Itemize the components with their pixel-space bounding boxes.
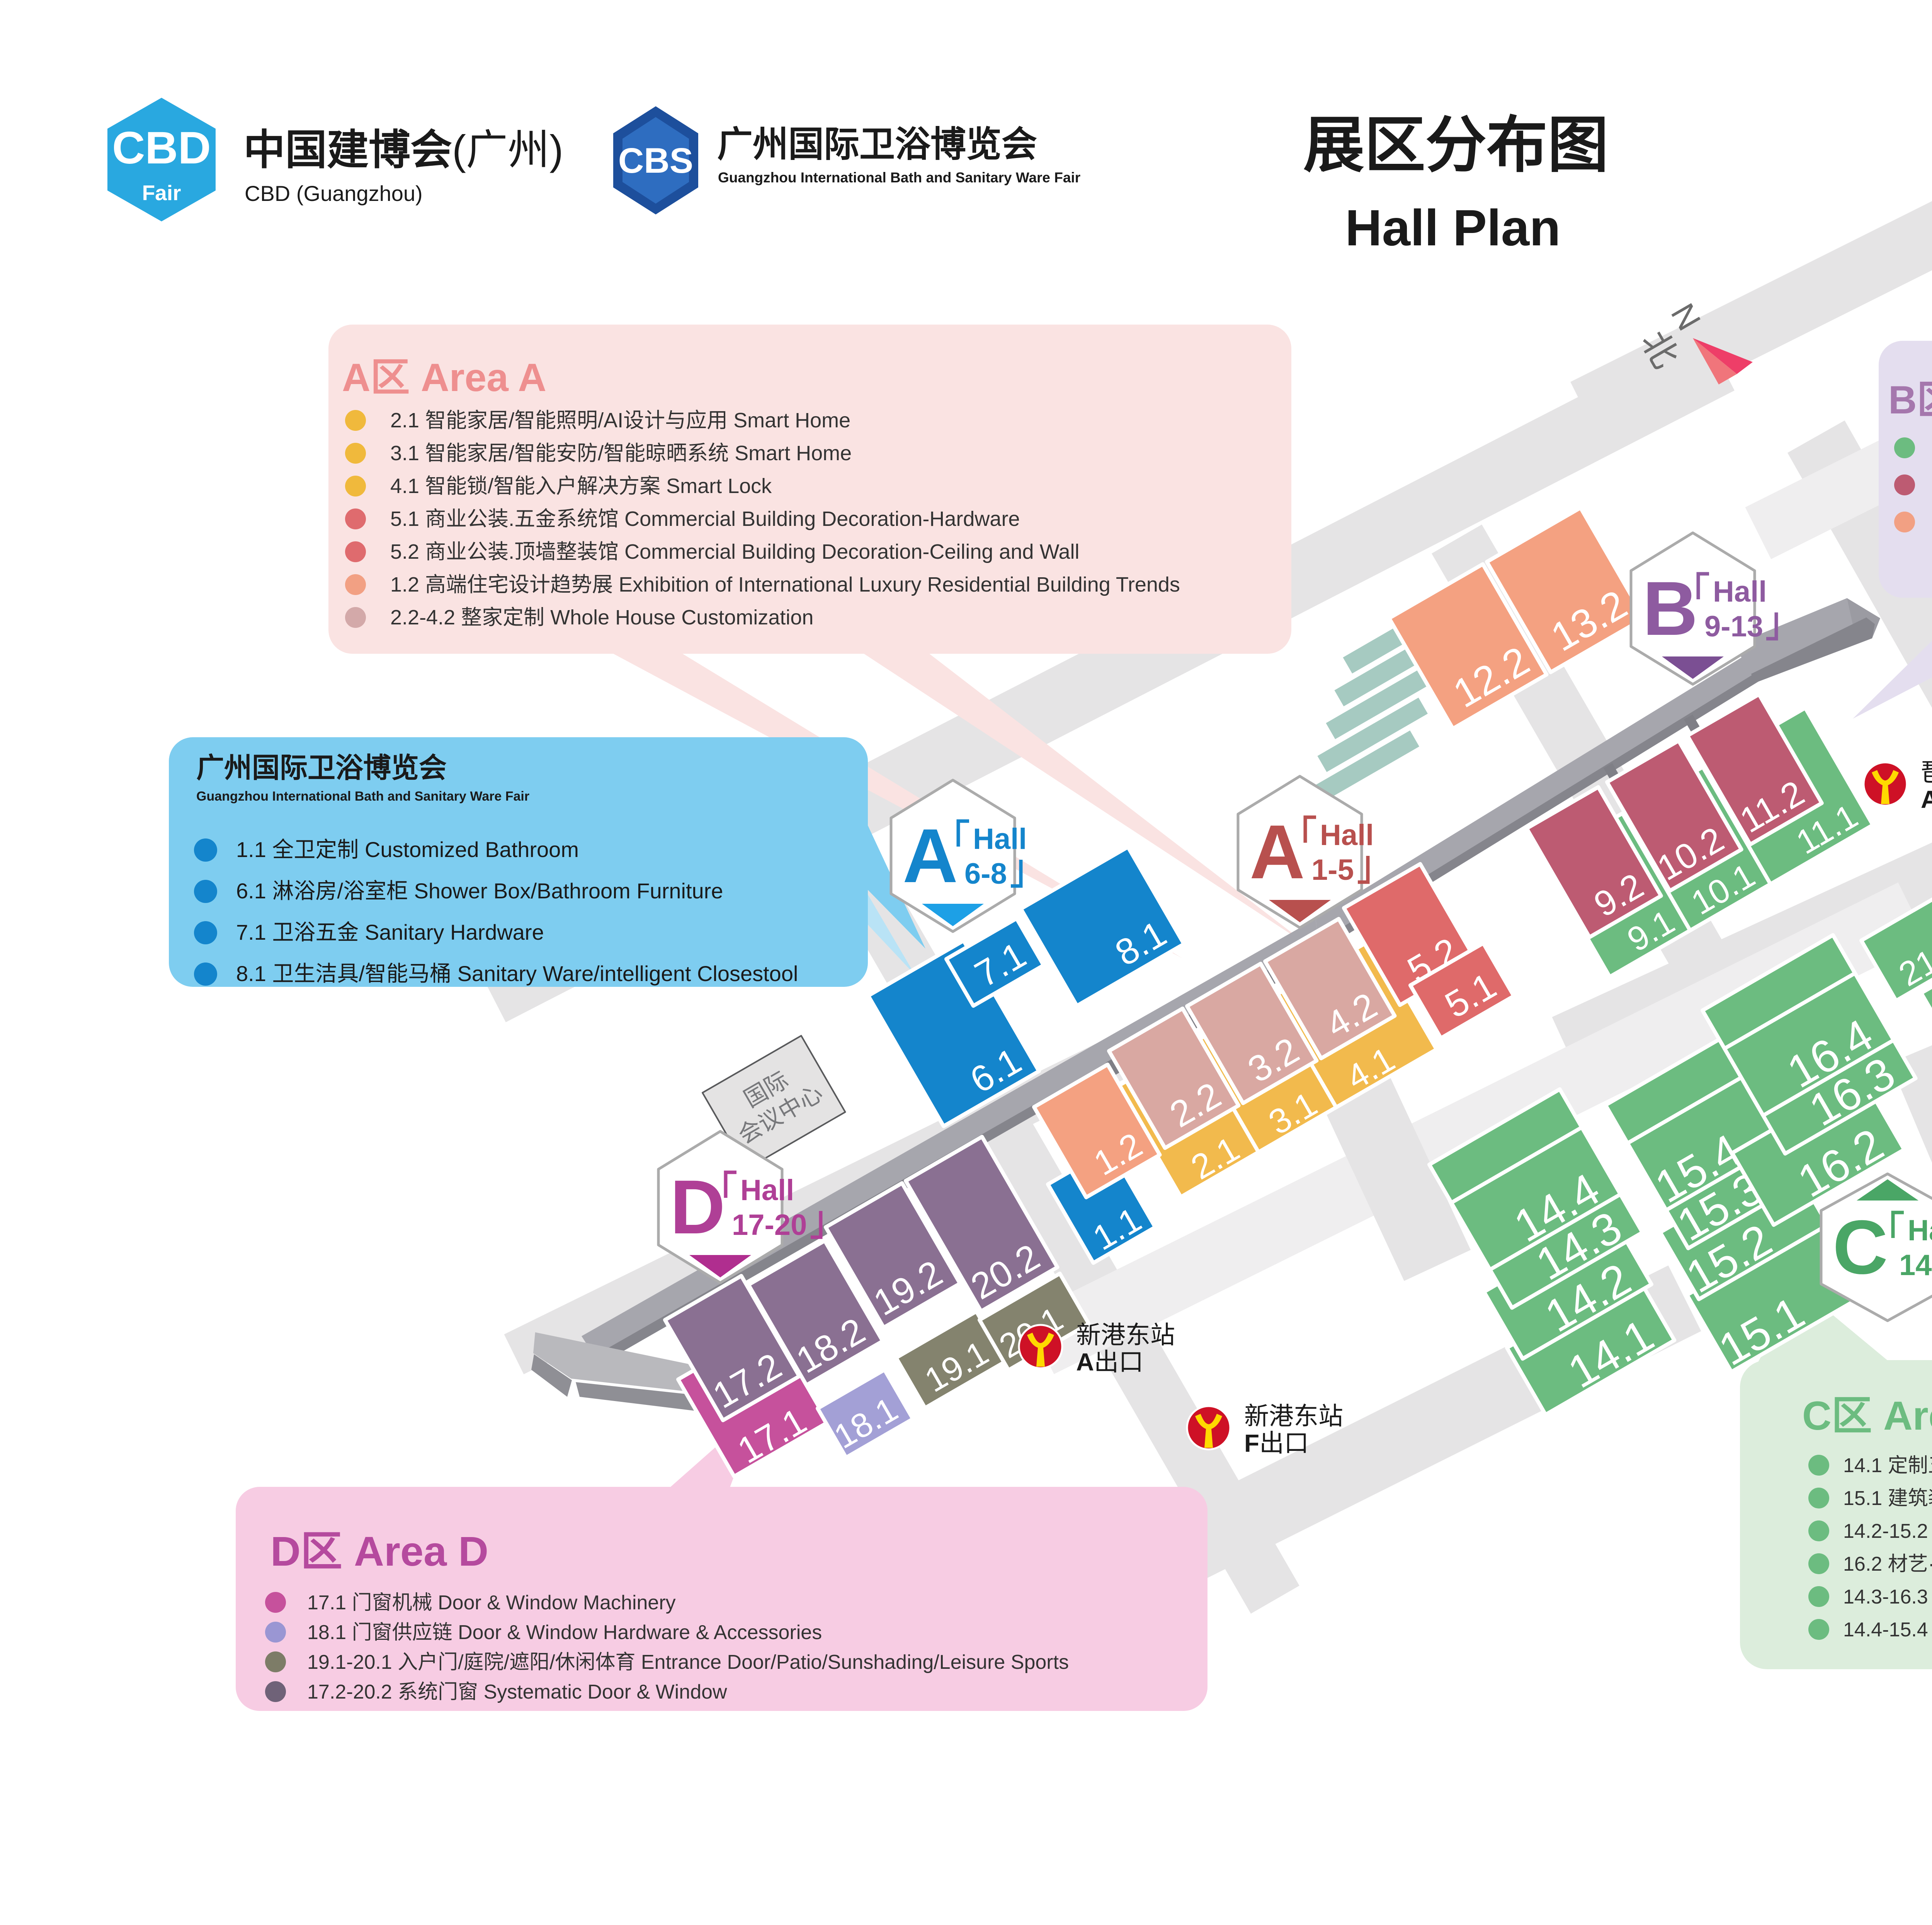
svg-text:6.1 淋浴房/浴室柜 Shower Box/Bathroo: 6.1 淋浴房/浴室柜 Shower Box/Bathroom Furnitur… bbox=[236, 879, 723, 903]
svg-text:7.1 卫浴五金 Sanitary Hardware: 7.1 卫浴五金 Sanitary Hardware bbox=[236, 920, 544, 944]
svg-text:Hall: Hall bbox=[1320, 819, 1374, 852]
svg-text:Guangzhou International Bath a: Guangzhou International Bath and Sanitar… bbox=[718, 170, 1080, 185]
svg-text:17-20: 17-20 bbox=[732, 1209, 807, 1241]
svg-text:A出口: A出口 bbox=[1921, 786, 1932, 813]
svg-text:CBD (Guangzhou): CBD (Guangzhou) bbox=[245, 181, 423, 206]
svg-text:14.2-15.2 定制五金 Furniture Hardw: 14.2-15.2 定制五金 Furniture Hardware bbox=[1843, 1520, 1932, 1542]
svg-text:Fair: Fair bbox=[142, 181, 181, 205]
svg-text:8.1 卫生洁具/智能马桶 Sanitary Ware/in: 8.1 卫生洁具/智能马桶 Sanitary Ware/intelligent … bbox=[236, 961, 798, 986]
svg-text:18.1 门窗供应链 Door & Window Hard: 18.1 门窗供应链 Door & Window Hardware & Acce… bbox=[307, 1621, 822, 1644]
svg-text:1-5: 1-5 bbox=[1311, 854, 1354, 886]
svg-text:A: A bbox=[1250, 809, 1305, 894]
svg-text:5.2 商业公装.顶墙整装馆 Commercial Buil: 5.2 商业公装.顶墙整装馆 Commercial Building Decor… bbox=[390, 540, 1080, 563]
svg-text:A出口: A出口 bbox=[1076, 1348, 1143, 1376]
svg-text:琶洲站: 琶洲站 bbox=[1921, 758, 1932, 786]
svg-text:CBD: CBD bbox=[112, 122, 211, 173]
svg-text:Hall Plan: Hall Plan bbox=[1345, 199, 1561, 256]
svg-text:3.1 智能家居/智能安防/智能晾晒系统 Smart Hom: 3.1 智能家居/智能安防/智能晾晒系统 Smart Home bbox=[390, 442, 852, 465]
svg-text:Hall: Hall bbox=[1713, 575, 1767, 608]
svg-text:5.1 商业公装.五金系统馆 Commercial Buil: 5.1 商业公装.五金系统馆 Commercial Building Decor… bbox=[390, 507, 1020, 531]
svg-text:Guangzhou International Bath a: Guangzhou International Bath and Sanitar… bbox=[196, 789, 529, 804]
svg-text:B区 Area B: B区 Area B bbox=[1888, 378, 1932, 422]
svg-text:B: B bbox=[1643, 566, 1698, 651]
svg-text:16.2 材艺·国际馆 International Hall: 16.2 材艺·国际馆 International Hall -Hardware… bbox=[1843, 1553, 1932, 1575]
svg-text:D区 Area D: D区 Area D bbox=[270, 1528, 488, 1575]
svg-text:A区 Area A: A区 Area A bbox=[342, 355, 546, 400]
svg-text:19.1-20.1 入户门/庭院/遮阳/休闲体育 Entra: 19.1-20.1 入户门/庭院/遮阳/休闲体育 Entrance Door/P… bbox=[307, 1651, 1069, 1673]
svg-text:17.1 门窗机械 Door & Window Machi: 17.1 门窗机械 Door & Window Machinery bbox=[307, 1592, 676, 1614]
svg-text:C区 Area C: C区 Area C bbox=[1802, 1393, 1932, 1439]
svg-text:14-16: 14-16 bbox=[1899, 1249, 1932, 1282]
svg-text:新港东站: 新港东站 bbox=[1076, 1321, 1175, 1349]
svg-text:广州国际卫浴博览会: 广州国际卫浴博览会 bbox=[196, 753, 447, 784]
svg-text:15.1 建筑装饰五金 Decorative Hardwar: 15.1 建筑装饰五金 Decorative Hardware bbox=[1843, 1487, 1932, 1510]
svg-text:新港东站: 新港东站 bbox=[1244, 1402, 1343, 1430]
svg-text:4.1 智能锁/智能入户解决方案 Smart Lock: 4.1 智能锁/智能入户解决方案 Smart Lock bbox=[390, 474, 772, 498]
svg-text:14.3-16.3 家居材料 Interior Decora: 14.3-16.3 家居材料 Interior Decorative Mater… bbox=[1843, 1586, 1932, 1608]
svg-text:D: D bbox=[670, 1164, 725, 1250]
svg-text:A: A bbox=[903, 813, 958, 898]
svg-text:F出口: F出口 bbox=[1244, 1429, 1309, 1457]
svg-text:14.4-15.4 材料/五金 Material & Har: 14.4-15.4 材料/五金 Material & Hardware bbox=[1843, 1619, 1932, 1641]
svg-text:14.1 定制五金 Furniture Hardware: 14.1 定制五金 Furniture Hardware bbox=[1843, 1454, 1932, 1477]
svg-text:9-13: 9-13 bbox=[1704, 610, 1763, 643]
svg-text:广州国际卫浴博览会: 广州国际卫浴博览会 bbox=[717, 125, 1037, 164]
svg-text:中国建博会(广州): 中国建博会(广州) bbox=[243, 126, 563, 173]
svg-text:CBS: CBS bbox=[618, 141, 693, 180]
svg-text:Hall: Hall bbox=[740, 1174, 794, 1207]
svg-text:展区分布图: 展区分布图 bbox=[1303, 111, 1609, 179]
svg-text:17.2-20.2 系统门窗 Systematic Door: 17.2-20.2 系统门窗 Systematic Door & Window bbox=[307, 1681, 727, 1703]
svg-text:C: C bbox=[1833, 1204, 1888, 1290]
svg-text:Hall: Hall bbox=[1908, 1214, 1932, 1247]
svg-text:1.2 高端住宅设计趋势展 Exhibition of In: 1.2 高端住宅设计趋势展 Exhibition of Internationa… bbox=[390, 573, 1180, 596]
svg-text:Hall: Hall bbox=[973, 823, 1027, 855]
svg-text:2.2-4.2 整家定制 Whole House Custo: 2.2-4.2 整家定制 Whole House Customization bbox=[390, 606, 813, 629]
svg-text:6-8: 6-8 bbox=[964, 857, 1007, 890]
svg-text:2.1 智能家居/智能照明/AI设计与应用 Smart Ho: 2.1 智能家居/智能照明/AI设计与应用 Smart Home bbox=[390, 409, 850, 432]
svg-text:1.1 全卫定制 Customized Bathroom: 1.1 全卫定制 Customized Bathroom bbox=[236, 837, 579, 862]
